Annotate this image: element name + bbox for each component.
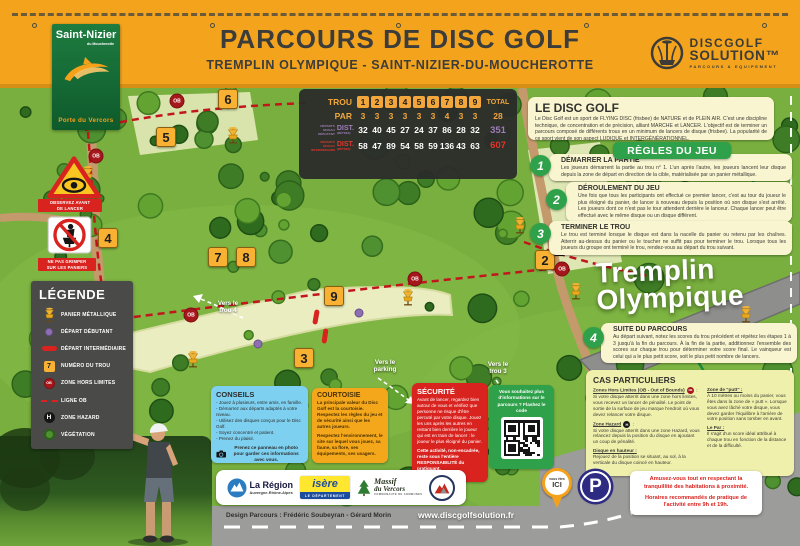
region-mountain-icon bbox=[227, 478, 247, 498]
special-cases-right-column: Zone de "putt" : À 10 mètres ou moins du… bbox=[707, 387, 787, 469]
isere-logo: isère LE DÉPARTEMENT bbox=[300, 476, 350, 499]
scorecard-total-label: TOTAL bbox=[487, 99, 510, 106]
par-value: 3 bbox=[431, 111, 436, 121]
legend-item: OB ZONE HORS LIMITES bbox=[37, 375, 127, 392]
special-cases-panel: CAS PARTICULIERS Zones Hors Limites (OB … bbox=[586, 370, 794, 476]
rule-step-number: 3 bbox=[530, 223, 551, 244]
scorecard-table: TROU 1 2 3 4 5 6 7 8 9 TOTAL PAR 3 3 3 3… bbox=[299, 89, 517, 179]
tips-photo-note: Prenez ce panneau en photo pour garder c… bbox=[229, 445, 303, 463]
hole-number: 2 bbox=[371, 96, 383, 108]
tremplin-olympique-label: Tremplin Olympique bbox=[595, 255, 744, 314]
par-value: 4 bbox=[445, 111, 450, 121]
fir-tree-icon bbox=[357, 478, 371, 497]
legend-item: DÉPART DÉBUTANT bbox=[37, 323, 127, 340]
hole-number: 4 bbox=[399, 96, 411, 108]
hazard-mini-icon: H bbox=[623, 421, 630, 428]
rule-step-4: SUITE DU PARCOURS Au départ suivant, not… bbox=[601, 323, 797, 363]
disc-golf-course-poster: Tremplin Olympique 654789312OBOBOBOBOBHV… bbox=[0, 0, 800, 546]
dashed-cut-line bbox=[12, 13, 788, 16]
poster-header: PARCOURS DE DISC GOLF TREMPLIN OLYMPIQUE… bbox=[0, 0, 800, 88]
beginner-distance: 37 bbox=[428, 125, 437, 135]
rule-step-number: 4 bbox=[583, 327, 604, 348]
design-credit: Design Parcours : Frédéric Soubeyran - G… bbox=[226, 512, 391, 519]
tips-panel: CONSEILS Jouez à plusieurs, entre amis, … bbox=[211, 386, 308, 463]
observe-sign-label: OBSERVEZ AVANTDE LANCER bbox=[38, 199, 102, 212]
par-value: 3 bbox=[473, 111, 478, 121]
hole-number: 3 bbox=[385, 96, 397, 108]
disc-golf-intro-panel: LE DISC GOLF Le Disc Golf est un sport d… bbox=[528, 97, 774, 140]
resort-logo bbox=[429, 475, 455, 501]
par-value: 3 bbox=[361, 111, 366, 121]
hole-number: 7 bbox=[441, 96, 453, 108]
hazard-zone-icon: H bbox=[37, 412, 61, 423]
parking-icon: P bbox=[580, 471, 611, 502]
rule-step-body: Les joueurs démarrent la partie au trou … bbox=[561, 165, 786, 178]
intermediate-distance: 59 bbox=[428, 141, 437, 151]
special-cases-title: CAS PARTICULIERS bbox=[593, 375, 787, 385]
scorecard-par-label: PAR bbox=[335, 111, 356, 121]
you-are-here-pin: vous êtes ICI bbox=[542, 468, 572, 512]
rule-step-body: Le trou est terminé lorsque le disque es… bbox=[561, 232, 786, 252]
courtesy-panel: COURTOISIE La principale valeur du Disc … bbox=[312, 388, 388, 463]
rules-badge: RÈGLES DU JEU bbox=[613, 142, 731, 159]
beginner-distance: 24 bbox=[414, 125, 423, 135]
legend-panel: LÉGENDE PANIER MÉTALLIQUE DÉPART DÉBUTAN… bbox=[31, 281, 133, 449]
scorecard-trou-label: TROU bbox=[328, 97, 356, 107]
intermediate-distance-label: DÉPARTS NIVEAU INTERMÉDIAIRE DIST.(MÈTRE… bbox=[311, 140, 356, 153]
basket-logo-icon bbox=[650, 36, 684, 70]
courtesy-title: COURTOISIE bbox=[317, 392, 383, 399]
rule-step-3: TERMINER LE TROU Le trou est terminé lor… bbox=[549, 221, 792, 255]
intermediate-distance: 58 bbox=[358, 141, 367, 151]
no-climbing-sign bbox=[46, 216, 93, 254]
vegetation-icon bbox=[37, 429, 61, 440]
legend-title: LÉGENDE bbox=[39, 287, 127, 302]
hole-number: 9 bbox=[469, 96, 481, 108]
qr-prompt: Vous souhaitez plus d'informations sur l… bbox=[493, 389, 550, 414]
hole-number: 1 bbox=[357, 96, 369, 108]
camera-icon bbox=[216, 446, 226, 462]
par-value: 3 bbox=[403, 111, 408, 121]
legend-item: PANIER MÉTALLIQUE bbox=[37, 306, 127, 323]
beginner-distance: 86 bbox=[442, 125, 451, 135]
player-photo bbox=[0, 436, 212, 546]
intermediate-tee-icon bbox=[37, 346, 61, 351]
par-value: 3 bbox=[375, 111, 380, 121]
massif-vercors-logo: Massif du Vercors COMMUNAUTÉ DE COMMUNES bbox=[357, 478, 422, 497]
intermediate-distance: 54 bbox=[400, 141, 409, 151]
rule-step-title: SUITE DU PARCOURS bbox=[613, 326, 791, 333]
qr-code bbox=[501, 417, 543, 459]
partner-logos-bar: La Région Auvergne-Rhône-Alpes isère LE … bbox=[216, 470, 466, 505]
intro-title: LE DISC GOLF bbox=[535, 101, 767, 115]
hole-number-icon: 7 bbox=[37, 361, 61, 372]
neighbourhood-notice: Amusez-vous tout en respectant la tranqu… bbox=[630, 471, 762, 515]
saint-nizier-logo: Saint-Nizier du Moucherotte Porte du Ver… bbox=[52, 24, 120, 130]
intermediate-total: 607 bbox=[490, 140, 506, 151]
tips-title: CONSEILS bbox=[216, 390, 303, 399]
beginner-distance: 28 bbox=[456, 125, 465, 135]
par-total: 28 bbox=[493, 111, 502, 121]
legend-item: 7 NUMÉRO DU TROU bbox=[37, 358, 127, 375]
legend-item: H ZONE HAZARD bbox=[37, 409, 127, 426]
hole-number: 5 bbox=[413, 96, 425, 108]
legend-item: LIGNE OB bbox=[37, 392, 127, 409]
ob-mini-icon: OB bbox=[687, 387, 694, 394]
ob-zone-icon: OB bbox=[37, 378, 61, 389]
par-value: 3 bbox=[389, 111, 394, 121]
beginner-distance: 32 bbox=[470, 125, 479, 135]
legend-item: VÉGÉTATION bbox=[37, 426, 127, 443]
discgolf-solution-logo: DISCGOLF SOLUTION™ PARCOURS & EQUIPEMENT bbox=[650, 36, 780, 70]
par-value: 3 bbox=[459, 111, 464, 121]
intermediate-distance: 47 bbox=[372, 141, 381, 151]
intermediate-distance: 89 bbox=[386, 141, 395, 151]
basket-icon bbox=[37, 307, 61, 322]
beginner-total: 351 bbox=[490, 125, 506, 136]
safety-panel: SÉCURITÉ Avant de lancer, regardez bien … bbox=[412, 383, 488, 482]
website-url: www.discgolfsolution.fr bbox=[418, 510, 514, 520]
intermediate-distance: 43 bbox=[456, 141, 465, 151]
special-cases-left-column: Zones Hors Limites (OB - Out of Bounds) … bbox=[593, 387, 700, 469]
intermediate-distance: 63 bbox=[470, 141, 479, 151]
ob-line-icon bbox=[37, 400, 61, 402]
intro-body: Le Disc Golf est un sport de FLYING DISC… bbox=[535, 116, 767, 142]
par-value: 3 bbox=[417, 111, 422, 121]
intermediate-distance: 136 bbox=[440, 141, 454, 151]
region-aura-logo: La Région Auvergne-Rhône-Alpes bbox=[227, 478, 294, 498]
rule-step-title: TERMINER LE TROU bbox=[561, 224, 786, 231]
tips-list: Jouez à plusieurs, entre amis, en famill… bbox=[216, 400, 303, 442]
no-climbing-sign-label: NE PAS GRIMPERSUR LES PANIERS bbox=[38, 258, 96, 271]
hole-number: 8 bbox=[455, 96, 467, 108]
beginner-distance: 45 bbox=[386, 125, 395, 135]
intermediate-distance: 58 bbox=[414, 141, 423, 151]
hole-number: 6 bbox=[427, 96, 439, 108]
beginner-distance: 27 bbox=[400, 125, 409, 135]
rule-step-title: DÉROULEMENT DU JEU bbox=[578, 185, 786, 192]
rule-step-number: 1 bbox=[530, 155, 551, 176]
qr-panel: Vous souhaitez plus d'informations sur l… bbox=[489, 385, 554, 469]
beginner-distance: 40 bbox=[372, 125, 381, 135]
rule-step-2: DÉROULEMENT DU JEU Une fois que tous les… bbox=[566, 182, 792, 222]
safety-title: SÉCURITÉ bbox=[417, 387, 483, 396]
legend-item: DÉPART INTERMÉDIAIRE bbox=[37, 340, 127, 357]
beginner-tee-icon bbox=[37, 328, 61, 336]
observe-warning-sign bbox=[46, 155, 102, 199]
beginner-distance-label: DÉPARTS NIVEAU DÉBUTANT DIST.(MÈTRES) bbox=[311, 124, 356, 137]
rule-step-body: Une fois que tous les participants ont e… bbox=[578, 193, 786, 219]
rule-step-body: Au départ suivant, notez les scores du t… bbox=[613, 334, 791, 360]
swoosh-icon bbox=[59, 54, 113, 86]
beginner-distance: 32 bbox=[358, 125, 367, 135]
rule-step-number: 2 bbox=[546, 189, 567, 210]
